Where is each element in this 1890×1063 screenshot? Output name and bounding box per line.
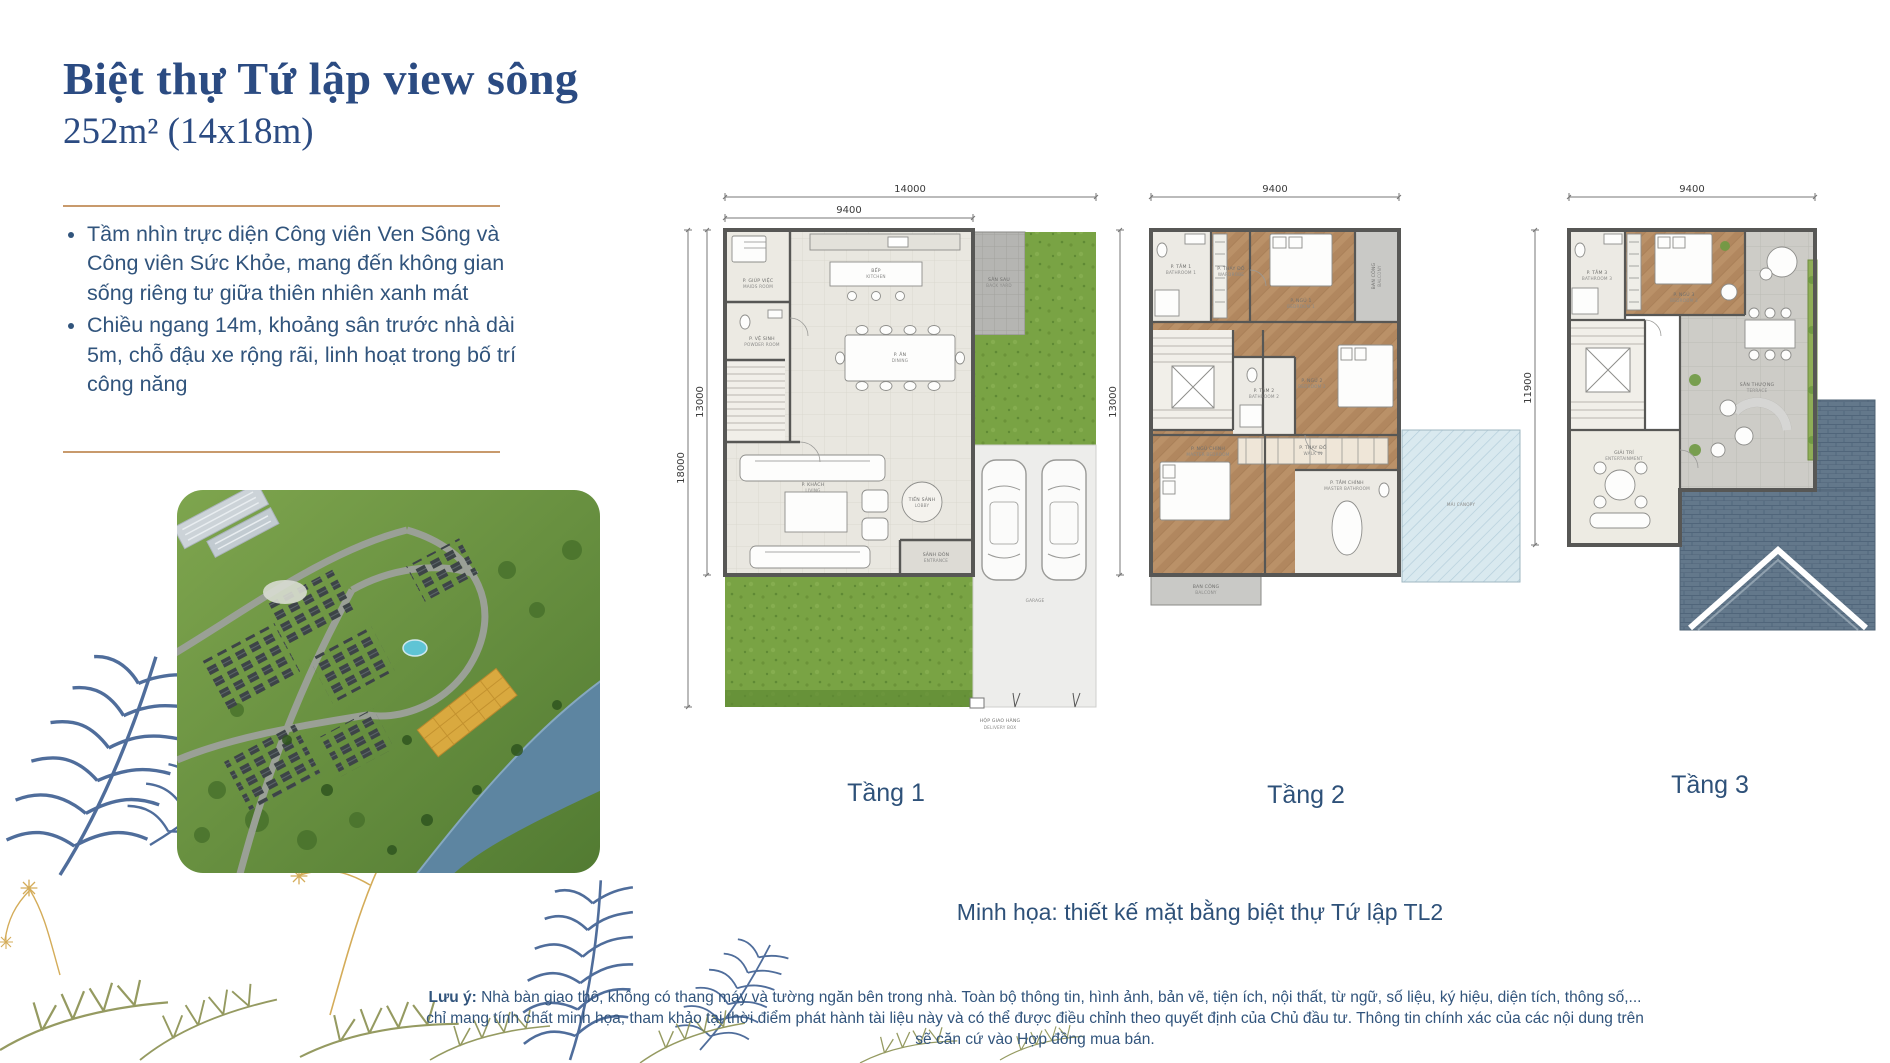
svg-text:WARDROBE: WARDROBE — [1218, 272, 1244, 277]
kitchen-counter — [810, 234, 960, 250]
disclaimer: Lưu ý: Nhà bàn giao thô, không có thang … — [420, 988, 1650, 1051]
svg-text:BALCONY: BALCONY — [1377, 265, 1382, 287]
page-subtitle: 252m² (14x18m) — [63, 110, 314, 153]
coffee-table — [785, 492, 847, 532]
svg-text:BEDROOM 1: BEDROOM 1 — [1287, 304, 1315, 309]
feature-bullet-1: Tầm nhìn trực diện Công viên Ven Sông và… — [87, 220, 521, 308]
svg-text:MASTER BATHROOM: MASTER BATHROOM — [1324, 486, 1370, 491]
svg-text:MASTER BEDROOM: MASTER BEDROOM — [1186, 452, 1229, 457]
feature-list: Tầm nhìn trực diện Công viên Ven Sông và… — [63, 220, 521, 403]
floor-plan-tang-1: 14000 9400 18000 13000 — [670, 150, 1110, 740]
terrace-table — [1745, 320, 1795, 348]
sofa-second — [750, 546, 870, 568]
svg-text:KITCHEN: KITCHEN — [866, 274, 886, 279]
svg-text:POWDER ROOM: POWDER ROOM — [744, 342, 780, 347]
sofa-main — [740, 455, 885, 481]
svg-text:P. ĂN: P. ĂN — [894, 351, 907, 358]
feature-bullet-2: Chiều ngang 14m, khoảng sân trước nhà dà… — [87, 311, 521, 399]
svg-text:DINING: DINING — [892, 358, 908, 363]
entertainment-table — [1605, 470, 1635, 500]
svg-text:ENTERTAINMENT: ENTERTAINMENT — [1605, 456, 1643, 461]
room-dining: P. ĂN DINING — [892, 351, 908, 363]
svg-text:BEDROOM 2: BEDROOM 2 — [1298, 384, 1326, 389]
area-backyard: SÂN SAU BACK YARD — [986, 276, 1012, 288]
area-garage: GARAGE — [1026, 598, 1045, 603]
delivery-box-icon — [970, 698, 984, 708]
delivery-box-label: HỘP GIAO HÀNG DELIVERY BOX — [980, 717, 1021, 730]
svg-text:SÂN THƯỢNG: SÂN THƯỢNG — [1740, 381, 1775, 388]
page-title: Biệt thự Tứ lập view sông — [63, 52, 578, 105]
dim-total-depth: 18000 — [676, 452, 687, 484]
svg-text:BALCONY: BALCONY — [1195, 590, 1217, 595]
floor-label-tang-3: Tầng 3 — [1610, 771, 1810, 800]
divider-bottom — [63, 451, 500, 453]
dim-body-width: 9400 — [1262, 184, 1287, 195]
svg-text:BATHROOM 1: BATHROOM 1 — [1166, 270, 1196, 275]
dim-body-depth: 13000 — [695, 386, 706, 418]
svg-text:WALK IN: WALK IN — [1304, 451, 1323, 456]
aerial-masterplan-image — [177, 490, 600, 873]
svg-text:BATHROOM 3: BATHROOM 3 — [1582, 276, 1612, 281]
svg-text:LIVING: LIVING — [805, 488, 820, 493]
canopy-label: MÁI CANOPY — [1447, 502, 1475, 507]
brochure-page: Biệt thự Tứ lập view sông 252m² (14x18m)… — [0, 0, 1890, 1063]
svg-text:BAN CÔNG: BAN CÔNG — [1370, 262, 1377, 289]
svg-text:ENTRANCE: ENTRANCE — [924, 558, 948, 563]
disclaimer-text: Nhà bàn giao thô, không có thang máy và … — [426, 989, 1644, 1048]
svg-text:MAIDS ROOM: MAIDS ROOM — [743, 284, 773, 289]
svg-text:LOBBY: LOBBY — [915, 503, 930, 508]
svg-text:BACK YARD: BACK YARD — [986, 283, 1012, 288]
svg-text:TERRACE: TERRACE — [1746, 388, 1768, 393]
disclaimer-label: Lưu ý: — [429, 989, 477, 1006]
divider-top — [63, 205, 500, 207]
dim-body-depth: 13000 — [1108, 386, 1119, 418]
svg-text:SÂN SAU: SÂN SAU — [988, 276, 1010, 283]
illustration-caption: Minh họa: thiết kế mặt bằng biệt thự Tứ … — [750, 899, 1650, 926]
floor-label-tang-1: Tầng 1 — [786, 779, 986, 808]
front-garden — [725, 575, 973, 707]
room-balcony1: BAN CÔNG BALCONY — [1370, 262, 1382, 289]
svg-text:BEDROOM 3: BEDROOM 3 — [1670, 298, 1698, 303]
floor-plan-tang-3: 9400 11900 — [1520, 150, 1890, 670]
dim-body-width: 9400 — [1679, 184, 1704, 195]
bed-maid — [732, 236, 766, 262]
dim-body-width: 9400 — [836, 205, 861, 216]
svg-text:P. KHÁCH: P. KHÁCH — [802, 481, 825, 488]
floor-label-tang-2: Tầng 2 — [1206, 781, 1406, 810]
dim-body-depth: 11900 — [1523, 372, 1534, 404]
svg-text:BAN CÔNG: BAN CÔNG — [1193, 583, 1220, 590]
svg-text:HỘP GIAO HÀNG: HỘP GIAO HÀNG — [980, 717, 1021, 724]
floor-plan-tang-2: 9400 13000 — [1100, 150, 1540, 640]
room-balcony2: BAN CÔNG BALCONY — [1193, 583, 1220, 595]
toilet-icon — [740, 315, 750, 329]
dim-total-width: 14000 — [894, 184, 926, 195]
bathtub-icon — [1332, 501, 1362, 555]
side-garden — [1025, 232, 1096, 445]
svg-text:DELIVERY BOX: DELIVERY BOX — [984, 725, 1017, 730]
svg-text:BATHROOM 2: BATHROOM 2 — [1249, 394, 1279, 399]
